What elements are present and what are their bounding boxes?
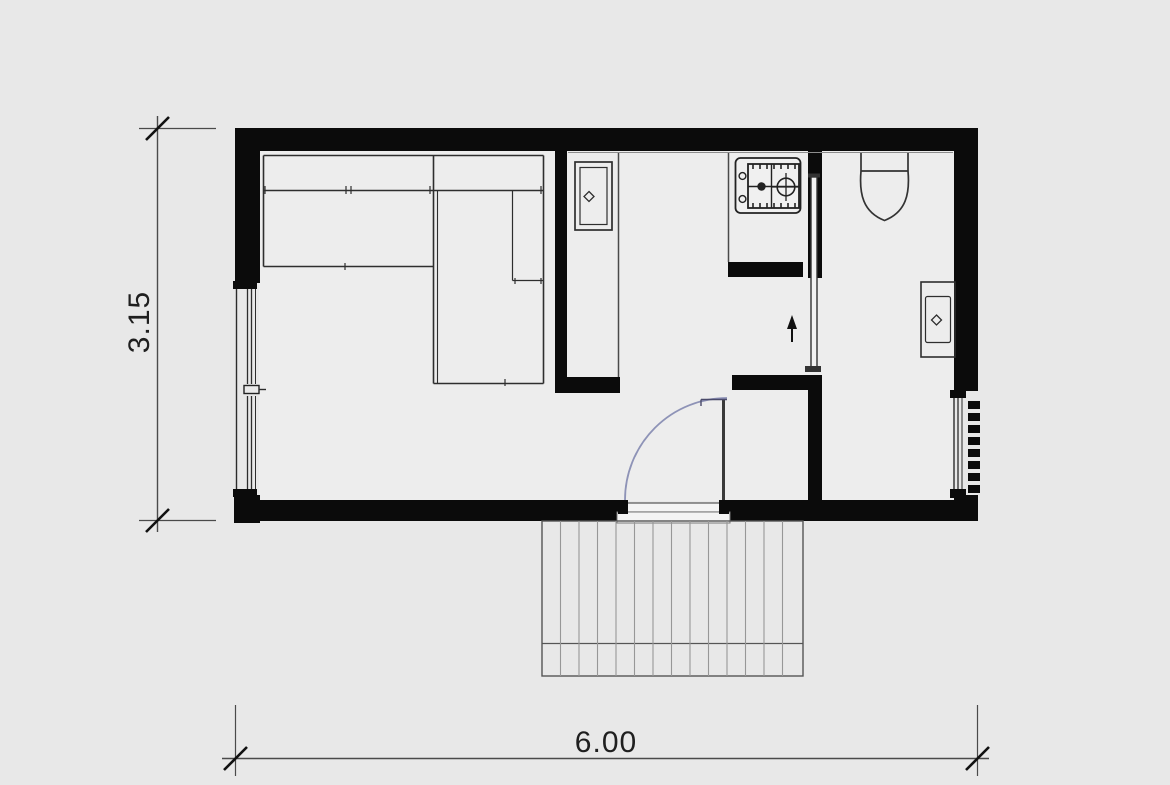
window-left-handle	[244, 386, 259, 394]
floor-plan-canvas: 3.15 6.00	[0, 0, 1170, 785]
sliding-door-panel	[811, 177, 817, 369]
door-threshold	[620, 503, 727, 512]
dimension-width-label: 6.00	[575, 726, 637, 759]
hob-knob-icon	[739, 173, 746, 180]
burner-small-icon	[757, 182, 765, 190]
door-jamb-right	[719, 500, 729, 514]
dimension-height-label: 3.15	[123, 291, 156, 353]
wood-deck	[542, 521, 803, 676]
hob-outline	[736, 158, 801, 213]
dimension-height: 3.15	[123, 116, 216, 532]
partition-cabinet	[555, 151, 567, 393]
window-right	[950, 390, 980, 498]
wall-right-upper	[954, 128, 978, 391]
vent-grille-icon	[968, 401, 980, 493]
dimension-width: 6.00	[222, 705, 989, 776]
gas-hob	[736, 158, 801, 213]
door-jamb-left	[618, 500, 628, 514]
wall-left-upper	[235, 128, 260, 283]
wall-top	[235, 128, 978, 151]
partition-kitchen-counter-end	[728, 262, 803, 277]
sliding-door-cap-top	[808, 174, 820, 178]
partition-cabinet-end	[555, 377, 620, 393]
wall-bottom-left	[235, 500, 620, 521]
partition-bath-lower	[808, 375, 822, 501]
sliding-door-cap-bottom	[805, 366, 821, 372]
wall-bottom-right	[727, 500, 978, 521]
hob-knob-icon	[739, 196, 746, 203]
window-right-cap-top	[950, 390, 966, 398]
window-left-cap-bottom	[233, 489, 257, 497]
deck-planks	[561, 521, 783, 676]
window-left-cap-top	[233, 281, 257, 289]
wall-right-lower-corner	[954, 495, 978, 521]
window-right-cap-bottom	[950, 489, 966, 498]
floor-plan-drawing: 3.15 6.00	[0, 0, 1170, 785]
